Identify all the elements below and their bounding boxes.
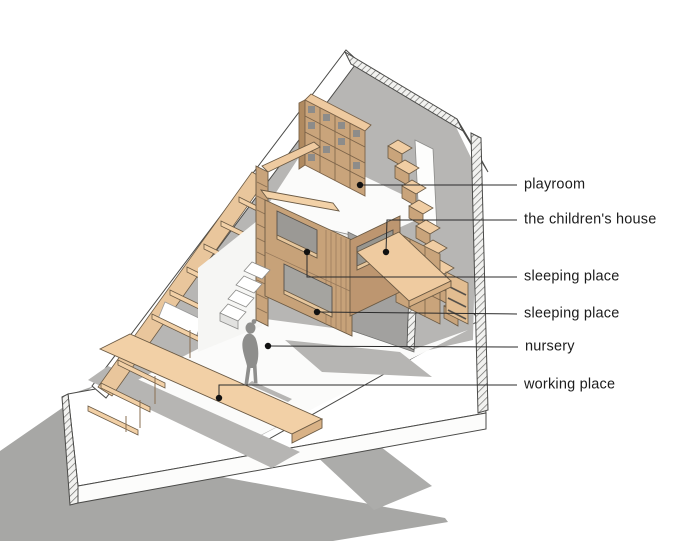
leader-dot-sleeping-2 (314, 309, 320, 315)
leader-dot-sleeping-1 (304, 249, 310, 255)
leader-dot-childrens-house (383, 249, 389, 255)
diagram-stage: playroomthe children's housesleeping pla… (0, 0, 700, 541)
axonometric-drawing (0, 0, 700, 541)
leader-dot-nursery (265, 343, 271, 349)
leader-dot-working-place (216, 395, 222, 401)
leader-dot-playroom (357, 182, 363, 188)
